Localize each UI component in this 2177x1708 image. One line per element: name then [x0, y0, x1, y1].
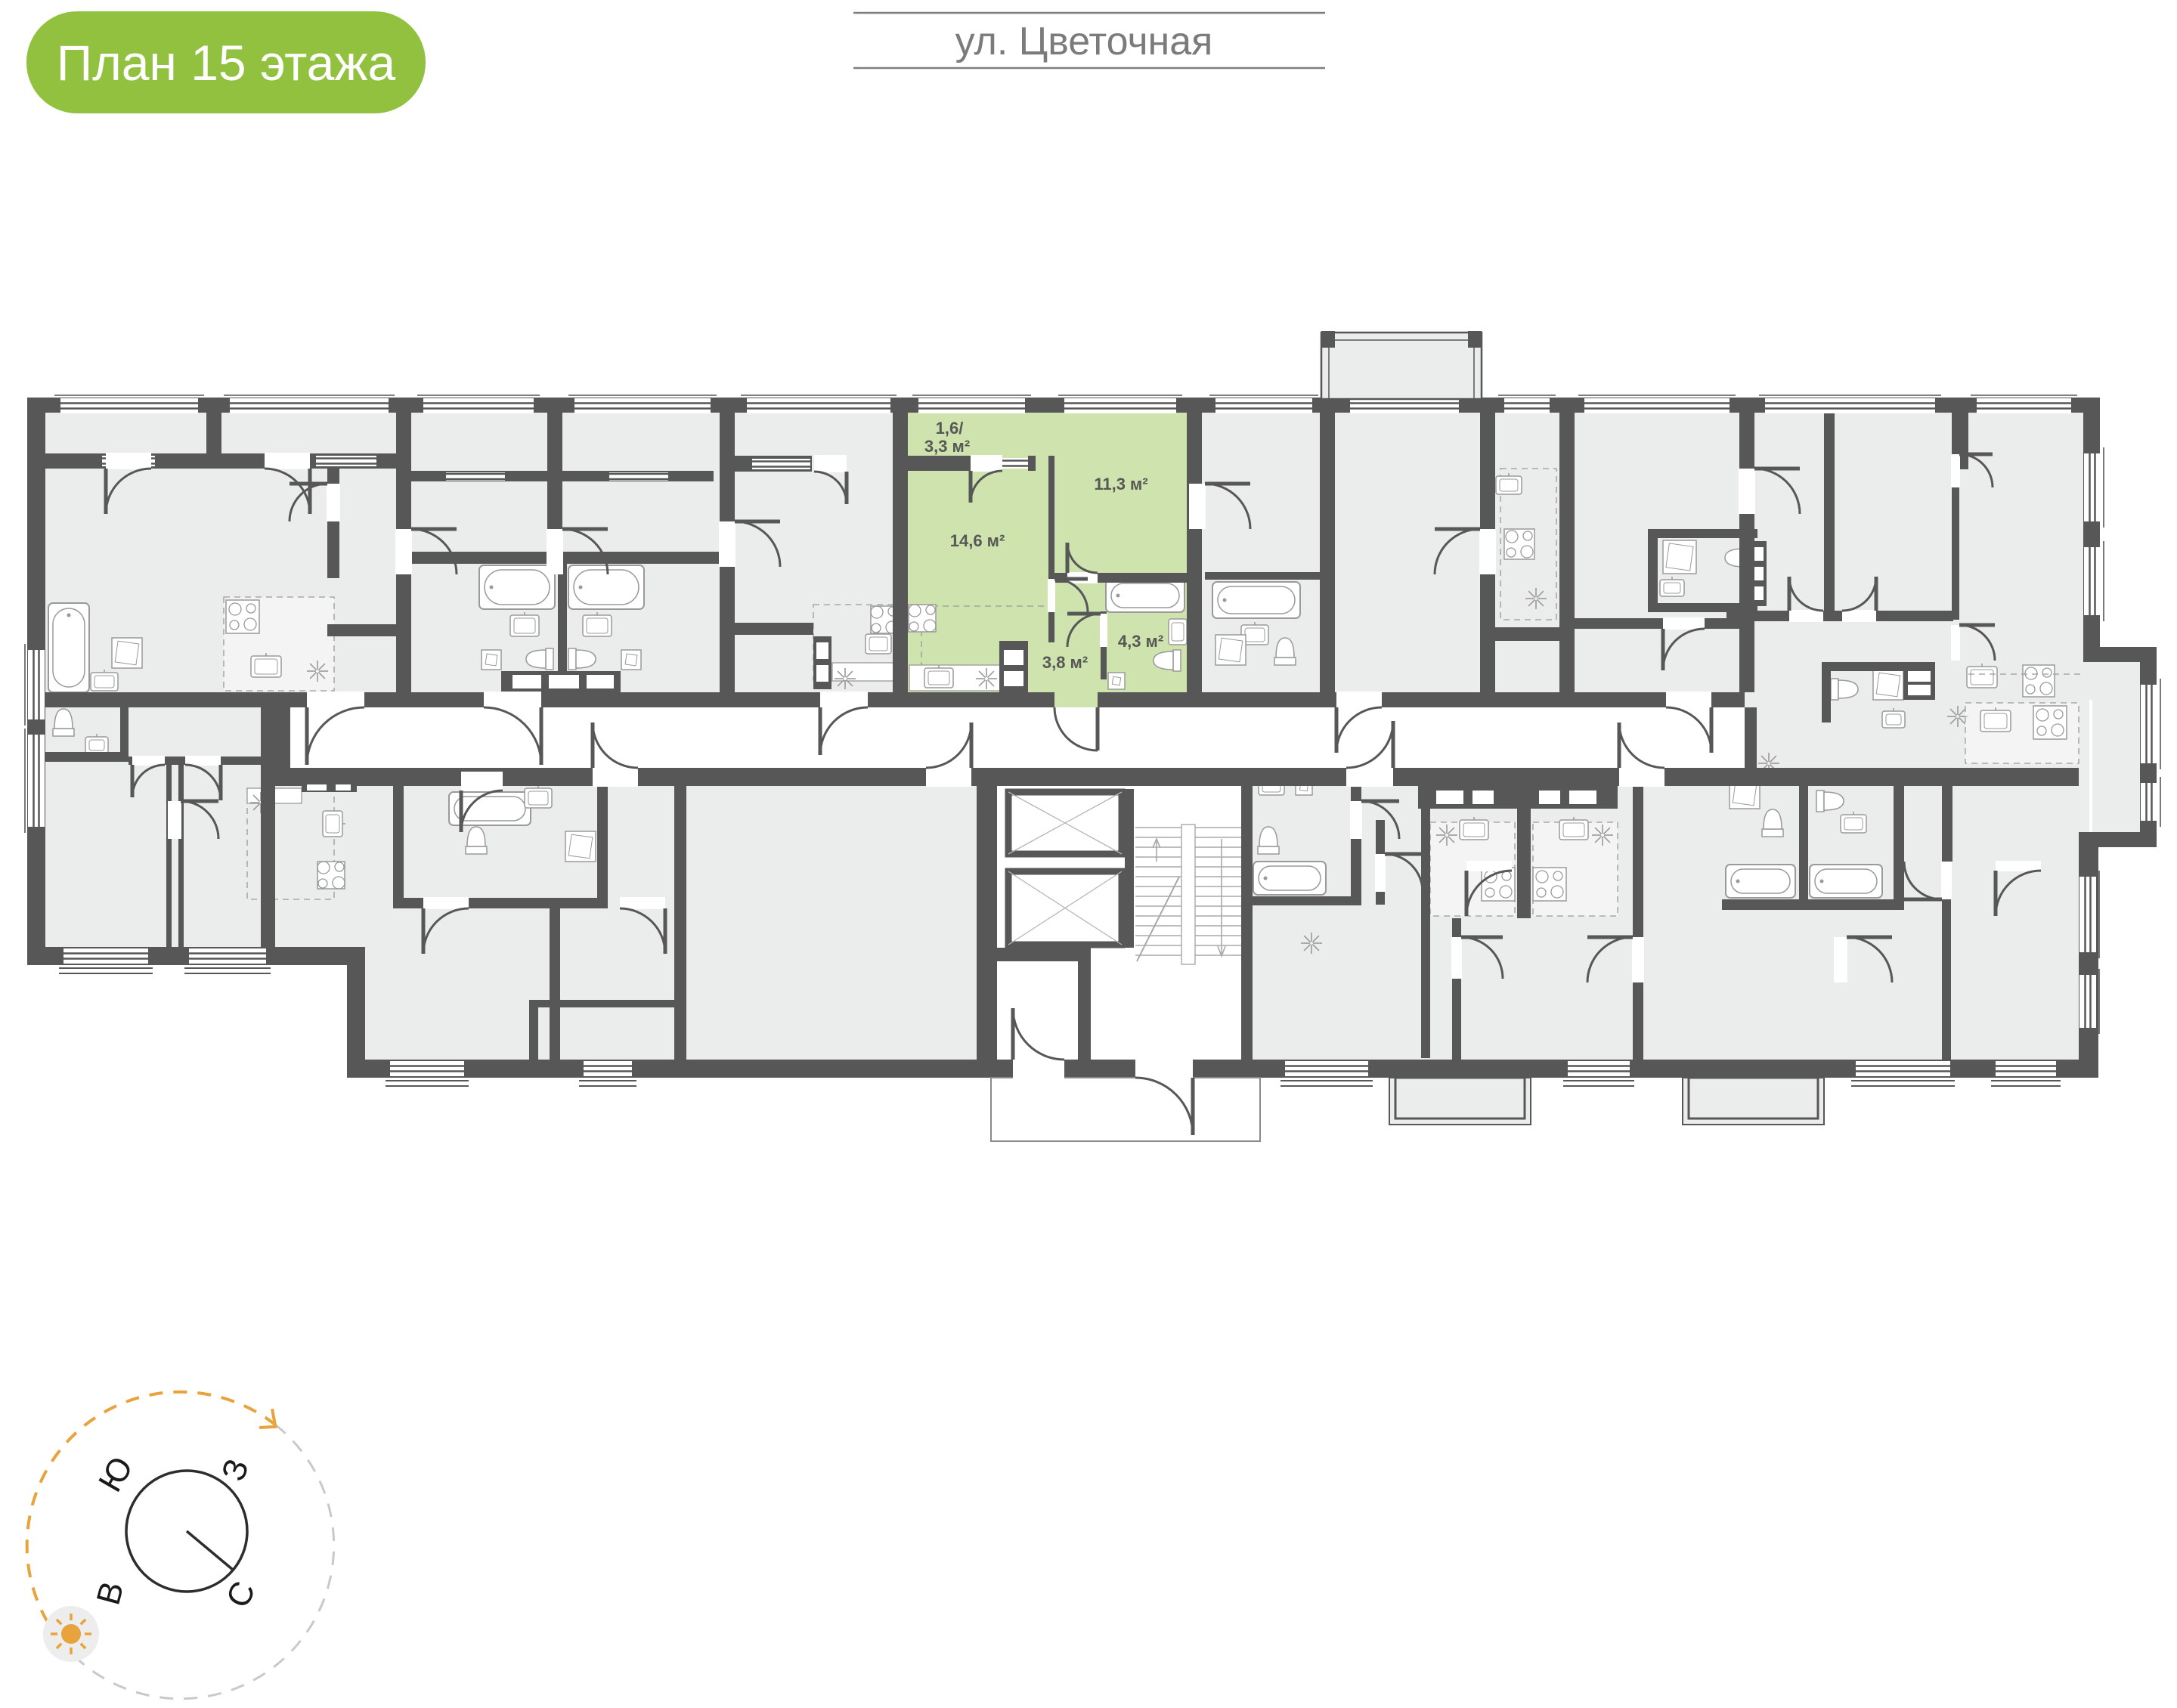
svg-text:14,6 м²: 14,6 м² [950, 531, 1005, 550]
svg-text:11,3 м²: 11,3 м² [1094, 475, 1147, 494]
svg-text:3,8 м²: 3,8 м² [1042, 653, 1088, 672]
svg-text:4,3 м²: 4,3 м² [1118, 632, 1163, 651]
svg-text:3,3 м²: 3,3 м² [924, 437, 970, 456]
svg-text:План 15 этажа: План 15 этажа [57, 35, 396, 91]
svg-text:1,6/: 1,6/ [936, 419, 964, 438]
svg-text:ул. Цветочная: ул. Цветочная [955, 20, 1213, 63]
